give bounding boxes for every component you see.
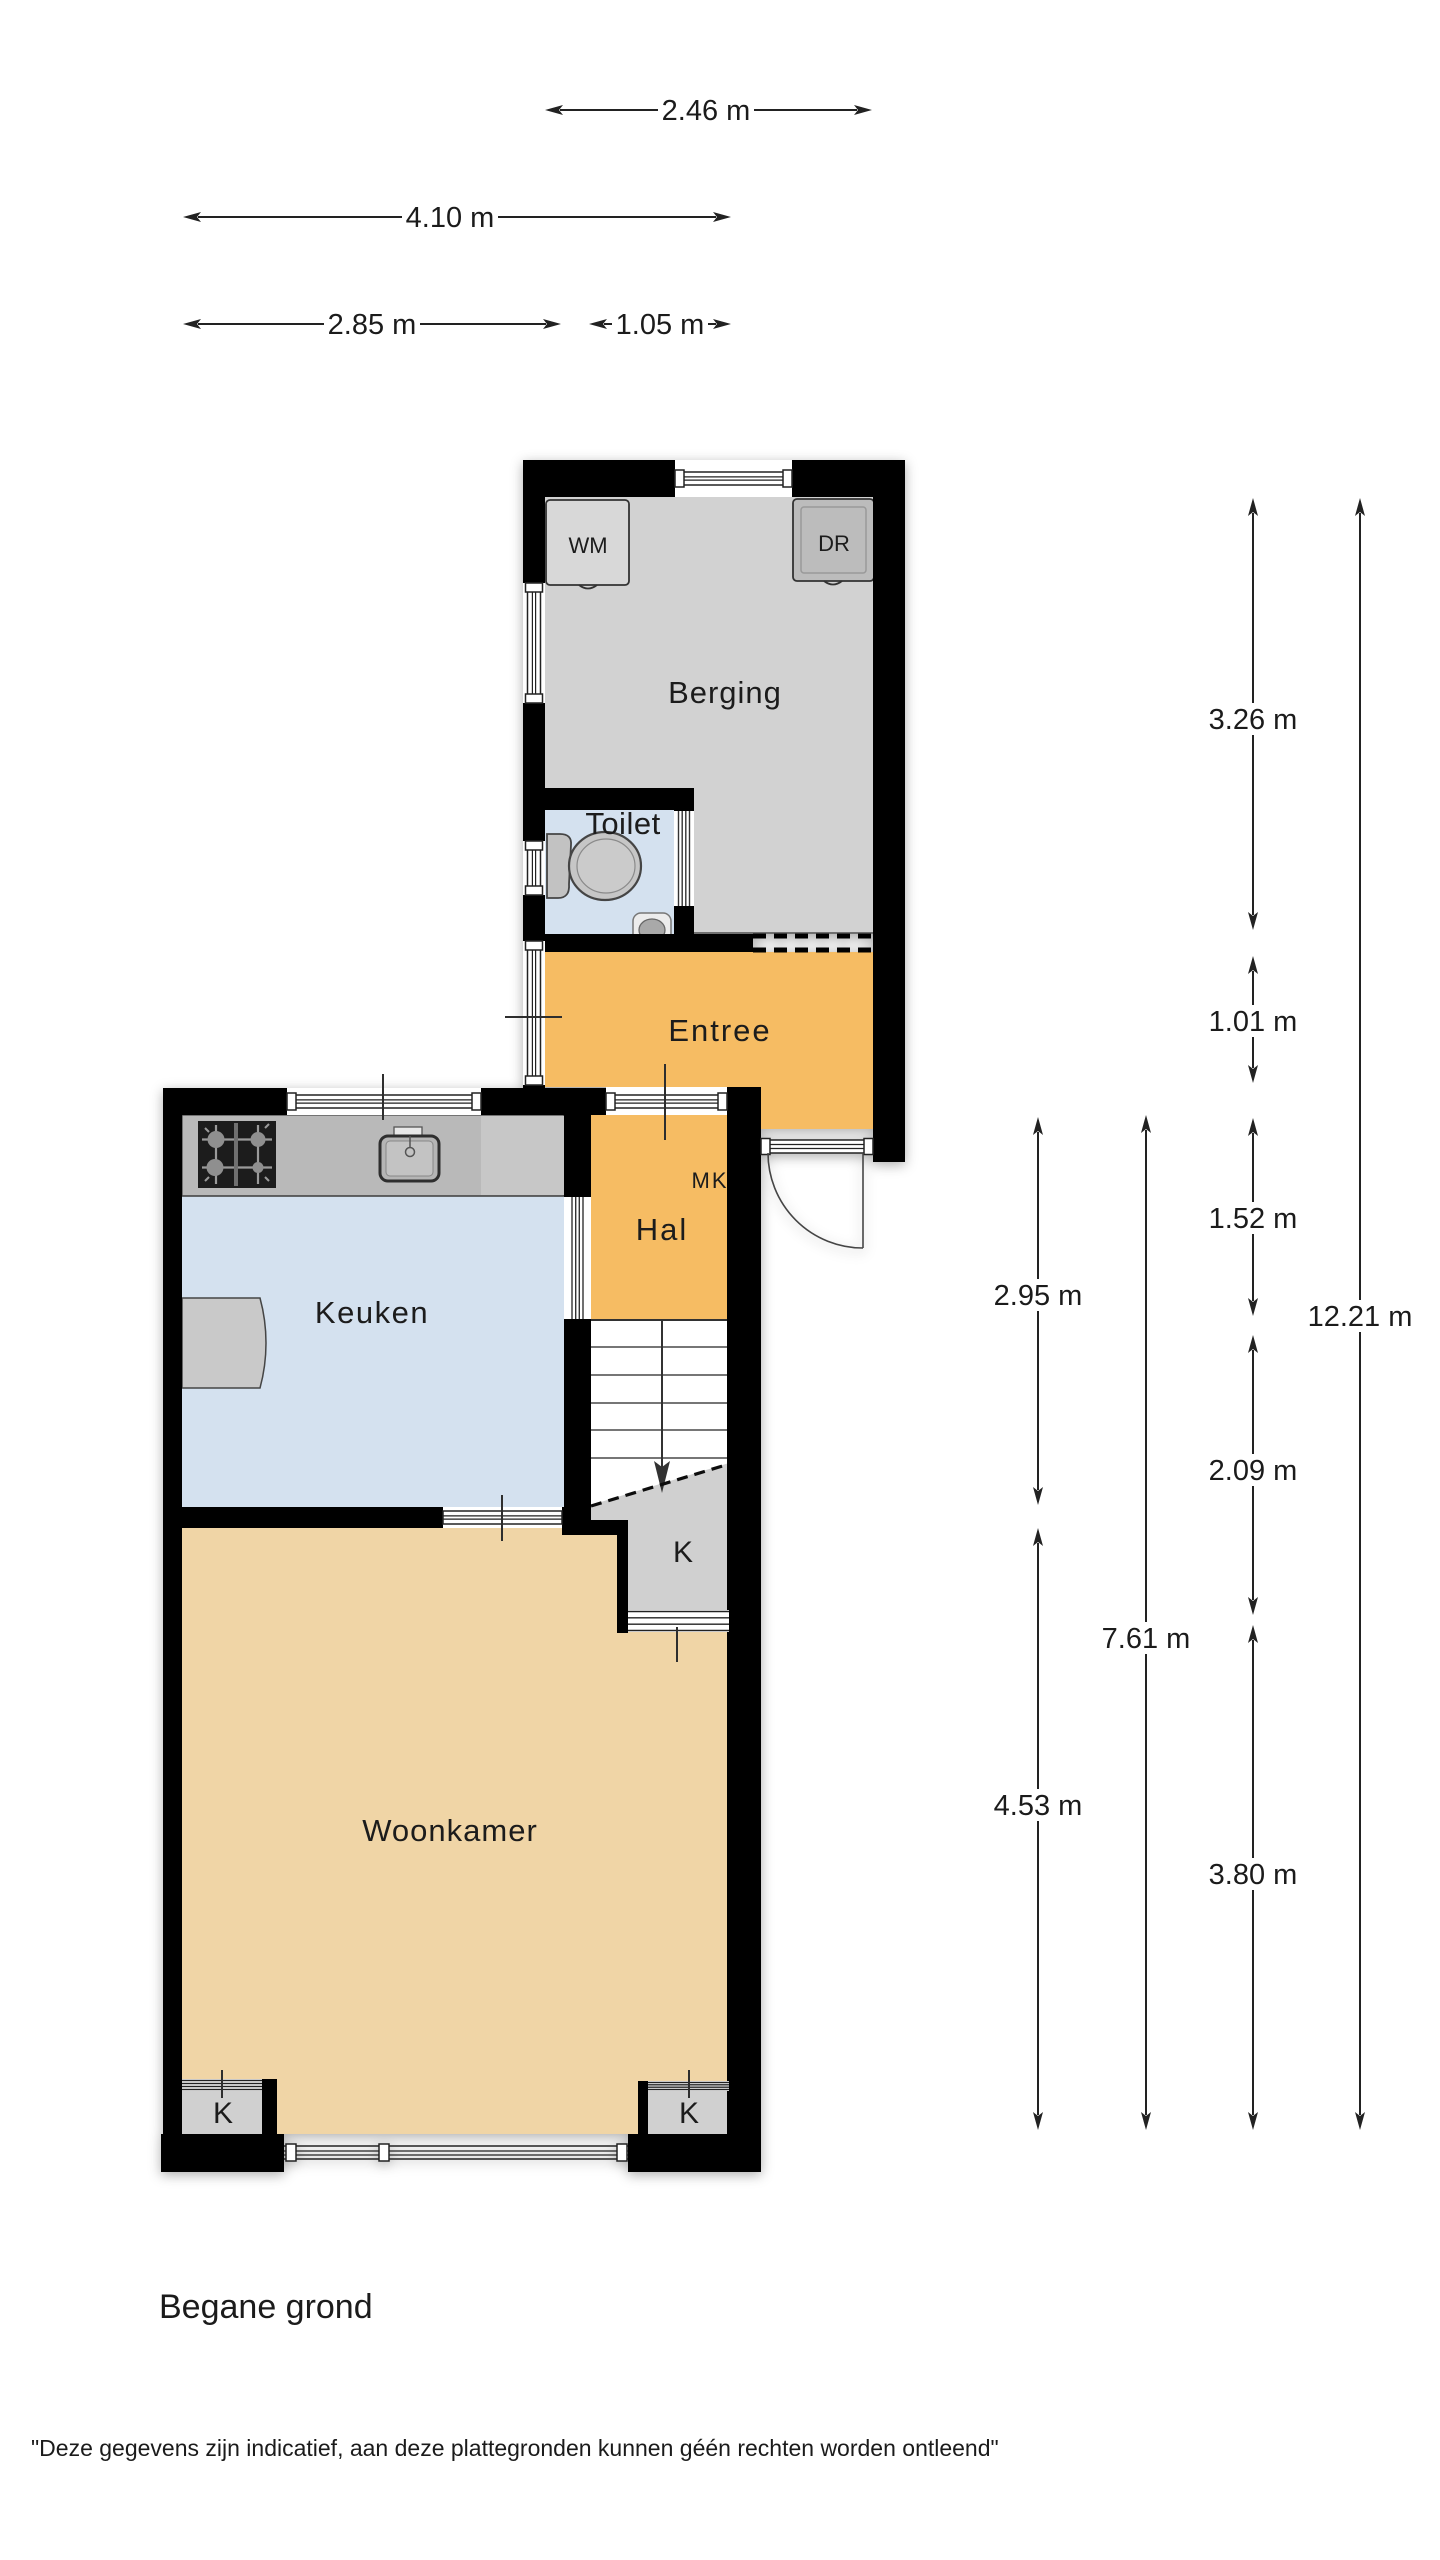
svg-text:Hal: Hal: [636, 1212, 689, 1247]
svg-text:K: K: [213, 2097, 233, 2130]
svg-text:Berging: Berging: [668, 675, 782, 710]
svg-text:4.53 m: 4.53 m: [994, 1790, 1083, 1822]
svg-text:3.26 m: 3.26 m: [1209, 704, 1298, 736]
svg-text:12.21 m: 12.21 m: [1308, 1301, 1413, 1333]
svg-text:Woonkamer: Woonkamer: [362, 1813, 538, 1848]
svg-text:1.05 m: 1.05 m: [616, 309, 705, 341]
svg-text:WM: WM: [568, 533, 607, 558]
svg-text:2.85 m: 2.85 m: [328, 309, 417, 341]
svg-text:4.10 m: 4.10 m: [406, 202, 495, 234]
svg-text:K: K: [673, 1536, 693, 1569]
svg-text:1.01 m: 1.01 m: [1209, 1006, 1298, 1038]
svg-text:MK: MK: [692, 1168, 729, 1193]
svg-text:Toilet: Toilet: [585, 806, 660, 841]
svg-text:2.95 m: 2.95 m: [994, 1280, 1083, 1312]
svg-text:DR: DR: [818, 531, 850, 556]
svg-text:3.80 m: 3.80 m: [1209, 1859, 1298, 1891]
svg-text:"Deze gegevens zijn indicatief: "Deze gegevens zijn indicatief, aan deze…: [31, 2435, 999, 2461]
svg-text:1.52 m: 1.52 m: [1209, 1203, 1298, 1235]
svg-text:2.46 m: 2.46 m: [662, 95, 751, 127]
svg-text:K: K: [679, 2097, 699, 2130]
svg-text:Entree: Entree: [668, 1013, 771, 1048]
svg-text:Begane grond: Begane grond: [159, 2288, 373, 2326]
svg-text:7.61 m: 7.61 m: [1102, 1623, 1191, 1655]
svg-text:2.09 m: 2.09 m: [1209, 1455, 1298, 1487]
svg-text:Keuken: Keuken: [315, 1295, 429, 1330]
